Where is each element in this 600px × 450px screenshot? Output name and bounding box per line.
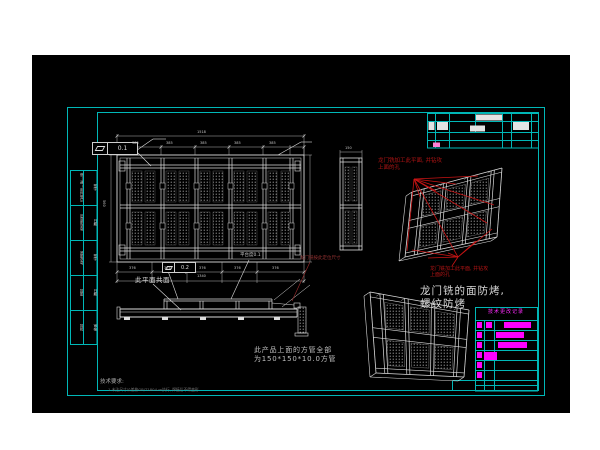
margin-strip-label: 底图总号 — [70, 251, 83, 265]
margin-strip-label: 签字 — [84, 254, 97, 261]
cad-screenshot: 0.1 0.2 此平面共面 平台度0.1 龙门铣按此定位尺寸 龙门铣加工此平面,… — [0, 0, 600, 450]
change-mark — [486, 322, 492, 328]
change-mark — [477, 352, 482, 358]
margin-strip-label: 日期 — [84, 289, 97, 296]
parts-table-grid — [453, 308, 538, 392]
change-mark — [477, 342, 482, 348]
margin-strip-label: 描图 — [70, 289, 83, 296]
red-note-mid: 龙门铣加工此平面, 并钻攻 上面的孔 — [430, 266, 488, 279]
margin-strip-row: 描校审核 — [70, 310, 97, 345]
margin-strip-row: 底图总号签字 — [70, 240, 97, 275]
end-view — [340, 158, 362, 250]
square-tube-note: 此产品上面的方管全部 为150*150*10.0方管 — [254, 346, 336, 364]
change-mark — [498, 342, 527, 348]
red-note-top-line1: 龙门铣加工此平面, 并钻攻 — [378, 158, 442, 165]
flatness-icon — [93, 143, 107, 154]
red-note-top: 龙门铣加工此平面, 并钻攻 上面的孔 — [378, 158, 442, 172]
change-mark — [496, 332, 524, 338]
margin-strip-row: 旧底图总号日期 — [70, 205, 97, 240]
dim-seg-top: 385 — [200, 141, 207, 145]
coplanar-note: 此平面共面 — [135, 276, 170, 284]
plan-view — [117, 155, 304, 262]
gantry-locate-note: 龙门铣按此定位尺寸 — [300, 256, 341, 262]
margin-strip-label: 日期 — [84, 219, 97, 226]
dim-seg-top: 385 — [234, 141, 241, 145]
dim-seg-top: 385 — [132, 141, 139, 145]
red-leader-lines — [292, 176, 494, 301]
square-tube-note-line1: 此产品上面的方管全部 — [254, 346, 336, 355]
margin-strip-label: 借(通)用件登记 — [70, 173, 83, 202]
side-elevation-view — [117, 279, 310, 336]
square-tube-note-line2: 为150*150*10.0方管 — [254, 355, 336, 364]
red-note-top-line2: 上面的孔 — [378, 165, 442, 172]
margin-strip-table: 借(通)用件登记签字旧底图总号日期底图总号签字描图日期描校审核 — [70, 170, 97, 345]
tech-requirements-item: 1.未注尺寸公差按GB/T1804-m执行, 焊接后不得变形 — [108, 388, 199, 393]
change-mark — [477, 332, 482, 338]
platform-flatness-note: 平台度0.1 — [240, 253, 261, 259]
margin-strip-label: 签字 — [84, 184, 97, 191]
dim-seg-top: 385 — [269, 141, 276, 145]
dim-end-width: 150 — [345, 146, 352, 150]
dim-seg-bottom: 376 — [129, 266, 136, 270]
change-mark — [477, 372, 482, 378]
tech-requirements-title: 技术要求: — [100, 379, 124, 386]
dim-seg-bottom: 376 — [199, 266, 206, 270]
dim-left-height: 560 — [102, 200, 106, 207]
cad-viewport: 0.1 0.2 此平面共面 平台度0.1 龙门铣按此定位尺寸 龙门铣加工此平面,… — [32, 55, 570, 413]
margin-strip-label: 旧底图总号 — [70, 214, 83, 232]
change-mark — [484, 352, 497, 360]
dim-seg-top: 385 — [166, 141, 173, 145]
dim-seg-bottom: 376 — [272, 266, 279, 270]
red-note-mid-line2: 上面的孔 — [430, 272, 488, 278]
dim-overall-top: 1518 — [197, 130, 206, 134]
change-mark — [477, 362, 482, 368]
dim-seg-bottom: 376 — [234, 266, 241, 270]
dim-seg-bottom: 376 — [164, 266, 171, 270]
revision-table — [428, 114, 539, 149]
dim-overall-bottom: 1340 — [197, 274, 206, 278]
margin-strip-row: 借(通)用件登记签字 — [70, 170, 97, 205]
change-mark — [504, 322, 531, 328]
antibake-note-line1: 龙门铣的面防烤, — [420, 285, 505, 298]
change-mark — [477, 322, 482, 328]
margin-strip-label: 审核 — [84, 324, 97, 331]
change-table-title: 技术更改记录 — [476, 308, 536, 315]
margin-strip-row: 描图日期 — [70, 275, 97, 310]
isometric-view-top — [399, 168, 502, 261]
margin-strip-label: 描校 — [70, 324, 83, 331]
flatness-value: 0.2 — [174, 263, 195, 272]
